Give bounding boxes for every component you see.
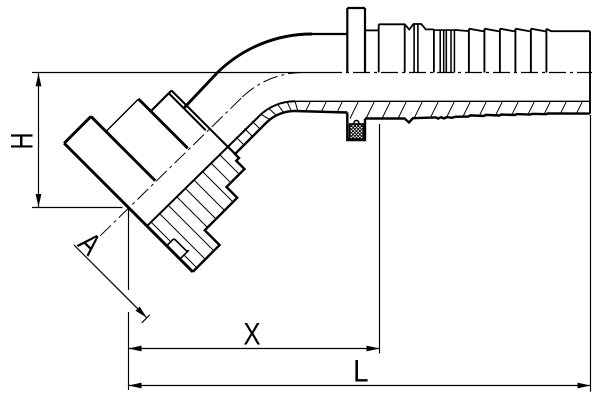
svg-text:H: H [4, 132, 39, 149]
svg-text:L: L [353, 354, 368, 389]
svg-text:X: X [243, 317, 260, 352]
